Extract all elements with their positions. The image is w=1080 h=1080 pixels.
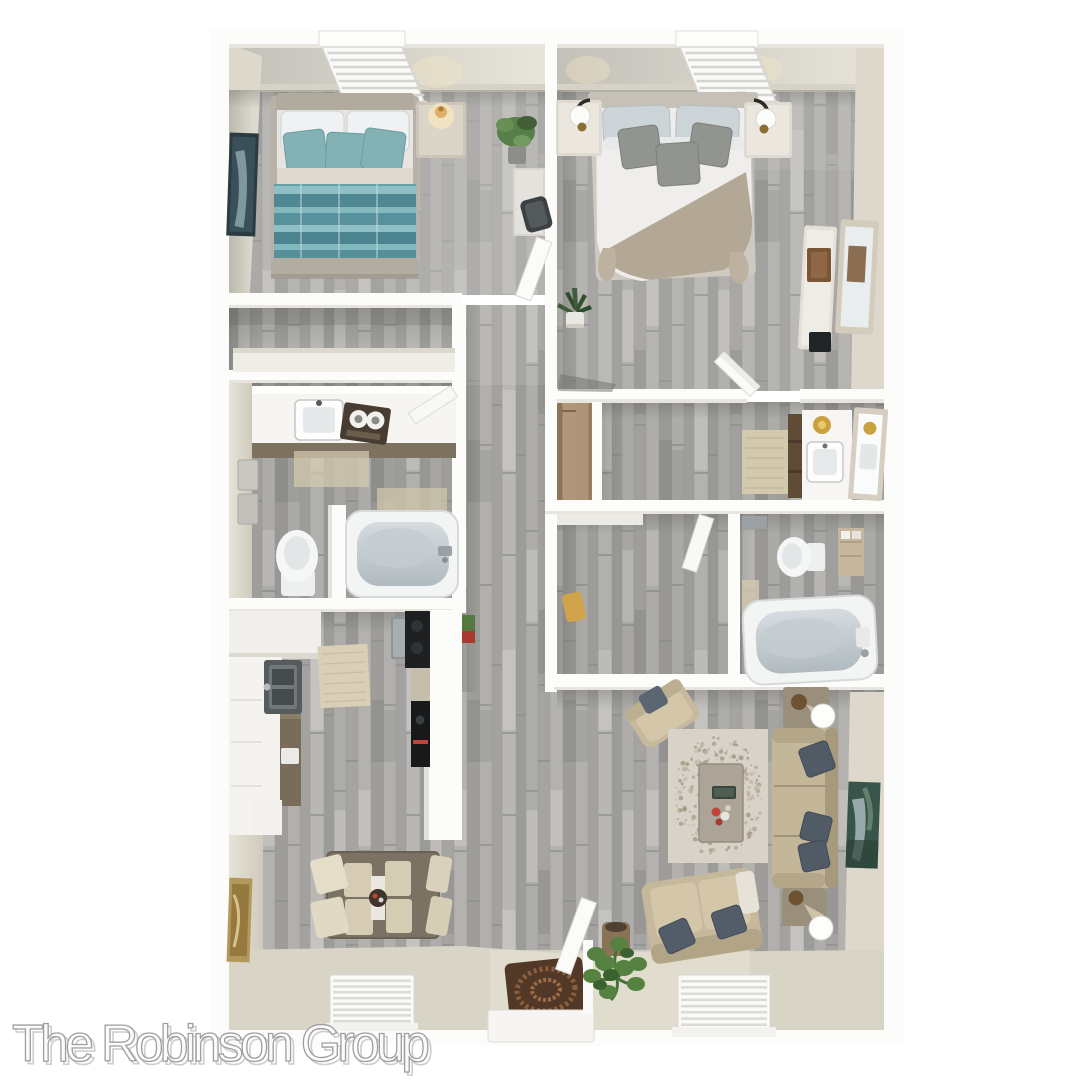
svg-text:The Robinson Group: The Robinson Group <box>12 1015 430 1073</box>
